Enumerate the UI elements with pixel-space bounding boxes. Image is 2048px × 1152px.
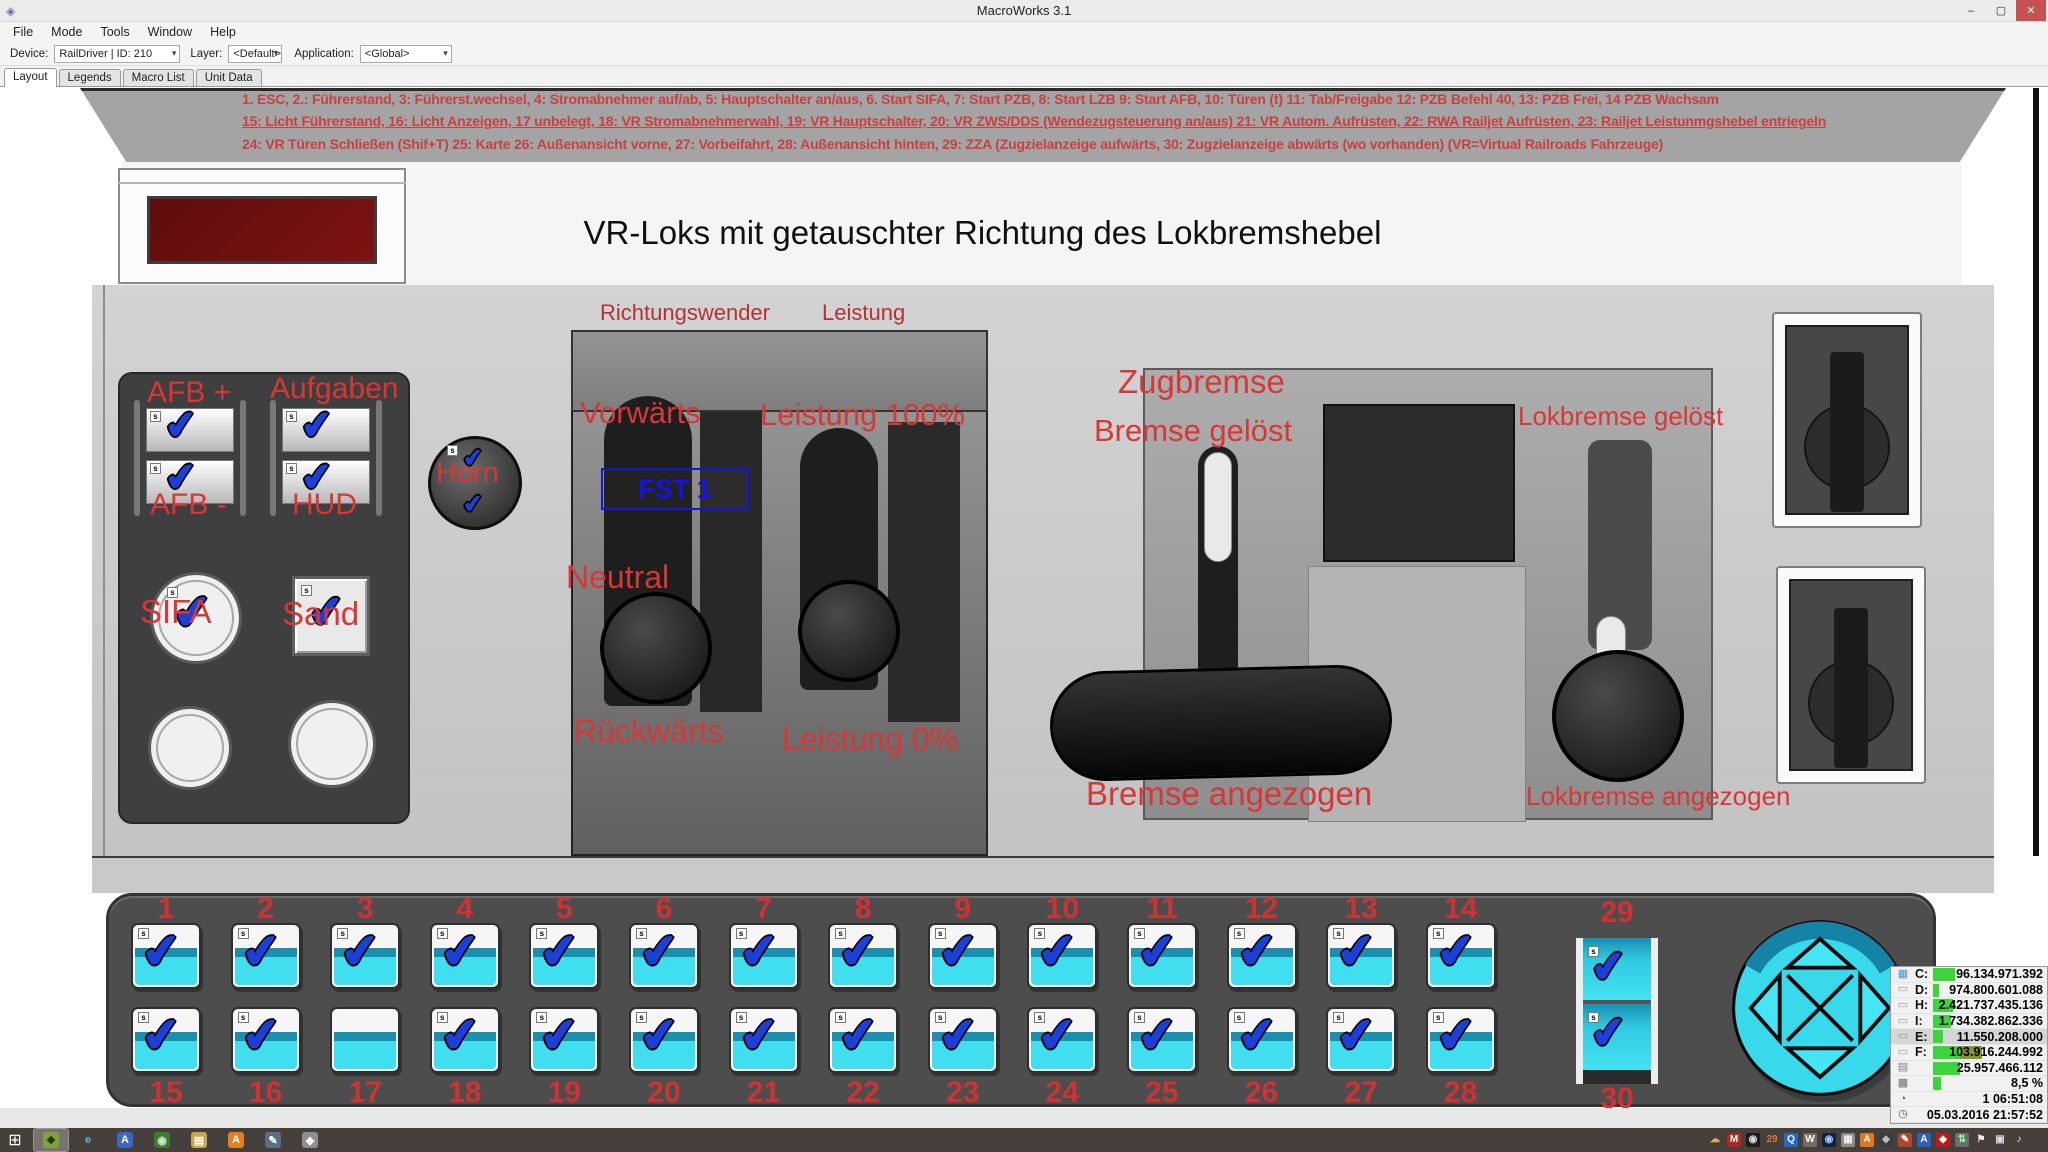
- drive-value: 8,5 %: [2011, 1076, 2043, 1090]
- device-value: RailDriver | ID: 210: [59, 48, 152, 60]
- macro-badge: s: [935, 928, 946, 939]
- window-title: MacroWorks 3.1: [0, 3, 2048, 18]
- title-bar: ◈ MacroWorks 3.1 – ▢ ✕: [0, 0, 2048, 22]
- tab[interactable]: Unit Data: [196, 69, 262, 86]
- macro-badge: s: [1234, 928, 1245, 939]
- check-icon: ✔: [163, 405, 199, 446]
- macro-badge: s: [238, 928, 249, 939]
- macro-badge: s: [447, 445, 458, 456]
- layer-select[interactable]: <Default> ▾: [228, 45, 282, 63]
- macro-badge: s: [301, 585, 312, 596]
- drive-icon: ◔: [1891, 1094, 1915, 1105]
- macro-badge: s: [286, 463, 297, 474]
- drive-icon: ▭: [1891, 1000, 1915, 1011]
- macro-badge: s: [1433, 1012, 1444, 1023]
- macro-button[interactable]: [330, 1007, 400, 1073]
- rueckwaerts-label: Rückwärts: [574, 714, 723, 749]
- macro-badge: s: [736, 1012, 747, 1023]
- application-select[interactable]: <Global> ▾: [360, 45, 452, 63]
- drive-icon: ▩: [1891, 1078, 1915, 1089]
- button-number: 6: [629, 892, 699, 926]
- deck-button-row2: s ✔ s ✔ s ✔: [131, 1007, 1496, 1073]
- button-number: 28: [1426, 1076, 1496, 1110]
- monitor-row: ▭ H: 2.421.737.435.136: [1891, 998, 2047, 1014]
- drive-icon: ▭: [1891, 984, 1915, 995]
- horn-label: Horn: [436, 458, 499, 490]
- macro-badge: s: [437, 1012, 448, 1023]
- lokbremse-angezogen-label: Lokbremse angezogen: [1526, 782, 1791, 811]
- button-number: 18: [430, 1076, 500, 1110]
- button-number: 3: [330, 892, 400, 926]
- aufgaben-label: Aufgaben: [270, 372, 398, 405]
- monitor-row: ▭ I: 1.734.382.862.336: [1891, 1014, 2047, 1030]
- fst-indicator: FST 1: [601, 468, 749, 510]
- taskbar-app-icon[interactable]: ◈: [293, 1129, 327, 1151]
- sifa-label: SIFA: [140, 594, 212, 630]
- button-number: 13: [1326, 892, 1396, 926]
- drive-icon: ▤: [1891, 1062, 1915, 1073]
- button-stripe: [334, 1032, 396, 1041]
- afb-plus-label: AFB +: [147, 376, 231, 409]
- button-number: 15: [131, 1076, 201, 1110]
- macro-button[interactable]: s ✔: [1426, 1007, 1496, 1073]
- neutral-label: Neutral: [566, 560, 669, 595]
- monitor-row: ◷ 05.03.2016 21:57:52: [1891, 1107, 2047, 1123]
- macro-button[interactable]: s ✔: [430, 923, 500, 989]
- blank-round-button[interactable]: [288, 700, 376, 788]
- app-icon: ◈: [6, 4, 15, 18]
- menu-bar: FileModeToolsWindowHelp: [0, 22, 2048, 42]
- chevron-down-icon: ▾: [443, 48, 448, 59]
- macro-badge: s: [536, 1012, 547, 1023]
- button-number: 8: [828, 892, 898, 926]
- drive-value: 1 06:51:08: [1983, 1092, 2043, 1106]
- tray-icon[interactable]: M: [1727, 1133, 1741, 1147]
- button-number: 10: [1027, 892, 1097, 926]
- macro-button[interactable]: s ✔: [529, 1007, 599, 1073]
- macro-badge: s: [167, 587, 178, 598]
- app-glyph-icon: ◈: [302, 1132, 318, 1148]
- macro-badge: s: [150, 463, 161, 474]
- macro-button[interactable]: s ✔: [928, 923, 998, 989]
- blank-round-button[interactable]: [148, 706, 232, 790]
- drive-value: 25.957.466.112: [1957, 1061, 2043, 1075]
- bremse-geloest-label: Bremse gelöst: [1094, 414, 1292, 448]
- dpad-control[interactable]: [1724, 912, 1916, 1104]
- tray-icon[interactable]: A: [1860, 1133, 1874, 1147]
- macro-button[interactable]: s ✔: [1426, 923, 1496, 989]
- macro-badge: s: [1034, 1012, 1045, 1023]
- drive-label: C:: [1915, 967, 1928, 981]
- deck-button-row1: s ✔ s ✔ s ✔ s ✔: [131, 923, 1496, 989]
- key-legend-line3: 24: VR Türen Schließen (Shif+T) 25: Kart…: [242, 136, 1663, 152]
- button-number: 20: [629, 1076, 699, 1110]
- macro-badge: s: [636, 1012, 647, 1023]
- tray-icon[interactable]: A: [1917, 1133, 1931, 1147]
- macro-badge: s: [935, 1012, 946, 1023]
- macro-badge: s: [1333, 1012, 1344, 1023]
- console-bottom-band: [92, 856, 1994, 893]
- button-number: 21: [729, 1076, 799, 1110]
- drive-value: 05.03.2016 21:57:52: [1927, 1108, 2043, 1122]
- taskbar-app-icon[interactable]: A: [219, 1129, 253, 1151]
- button-number: 9: [928, 892, 998, 926]
- leistung100-label: Leistung 100%: [760, 398, 965, 432]
- button-ring: [156, 714, 224, 782]
- macro-badge: s: [1034, 928, 1045, 939]
- app-glyph-icon: A: [117, 1132, 133, 1148]
- throttle-slot2: [888, 422, 960, 722]
- app-glyph-icon: e: [80, 1132, 96, 1148]
- monitor-row: ▤ 25.957.466.112: [1891, 1061, 2047, 1077]
- chevron-down-icon: ▾: [274, 48, 279, 59]
- rocker-rail: [270, 400, 276, 516]
- macro-badge: s: [138, 1012, 149, 1023]
- loco-brake-knob[interactable]: [1552, 650, 1684, 782]
- macro-badge: s: [1333, 928, 1344, 939]
- macro-button[interactable]: s ✔: [1127, 923, 1197, 989]
- menu-item[interactable]: Mode: [42, 23, 91, 41]
- macro-badge: s: [337, 928, 348, 939]
- monitor-row: ◔ 1 06:51:08: [1891, 1092, 2047, 1108]
- menu-item[interactable]: File: [4, 23, 42, 41]
- macro-button[interactable]: s ✔: [1127, 1007, 1197, 1073]
- lokbremse-geloest-label: Lokbremse gelöst: [1518, 402, 1723, 431]
- tray-icon[interactable]: Q: [1784, 1133, 1798, 1147]
- button-number: 14: [1426, 892, 1496, 926]
- check-icon: ✔: [462, 492, 485, 518]
- macro-button[interactable]: s ✔: [231, 1007, 301, 1073]
- macro-button[interactable]: s ✔: [629, 1007, 699, 1073]
- drive-value: 96.134.971.392: [1956, 967, 2043, 981]
- drive-icon: ▦: [1891, 969, 1915, 980]
- macro-badge: s: [138, 928, 149, 939]
- monitor-row: ▦ C: 96.134.971.392: [1891, 967, 2047, 983]
- usage-bar: [1933, 984, 1939, 997]
- rotary-switch-upper[interactable]: [1772, 312, 1922, 528]
- macro-button[interactable]: s ✔: [529, 923, 599, 989]
- rocker-rail: [240, 400, 246, 516]
- monitor-row: ▩ 8,5 %: [1891, 1076, 2047, 1092]
- taskbar-apps: ❖ e A ◉ ▤ A: [34, 1129, 327, 1151]
- tray-icon[interactable]: ▣: [1993, 1133, 2007, 1147]
- macro-button[interactable]: s ✔: [231, 923, 301, 989]
- console-seam: [103, 285, 105, 856]
- macro-badge: s: [536, 928, 547, 939]
- macro-button[interactable]: s ✔: [1326, 1007, 1396, 1073]
- monitor-row: ▭ E: 11.550.208.000: [1891, 1029, 2047, 1045]
- button-number: 17: [330, 1076, 400, 1110]
- usage-bar: [1933, 1030, 1943, 1043]
- desktop-strip: [0, 1108, 2048, 1128]
- drive-value: 11.550.208.000: [1957, 1030, 2043, 1044]
- tray-icon[interactable]: ✎: [1898, 1133, 1912, 1147]
- macro-button[interactable]: s ✔: [330, 923, 400, 989]
- canvas-right-edge: [2033, 88, 2039, 856]
- macro-button[interactable]: s ✔: [131, 1007, 201, 1073]
- macro-button[interactable]: s ✔: [1227, 1007, 1297, 1073]
- tab[interactable]: Legends: [59, 69, 121, 86]
- tray-icon[interactable]: ♪: [2012, 1133, 2026, 1147]
- taskbar-app-icon[interactable]: e: [71, 1129, 105, 1151]
- button-number: 23: [928, 1076, 998, 1110]
- usage-bar: [1933, 1077, 1941, 1090]
- macro-badge: s: [835, 928, 846, 939]
- tray-icon[interactable]: ◆: [1879, 1133, 1893, 1147]
- macro-button[interactable]: s ✔: [1227, 923, 1297, 989]
- macro-button[interactable]: s ✔: [828, 1007, 898, 1073]
- chevron-down-icon: ▾: [172, 48, 177, 59]
- macro-button[interactable]: s ✔: [430, 1007, 500, 1073]
- app-glyph-icon: ✎: [265, 1132, 281, 1148]
- minimize-button[interactable]: –: [1956, 0, 1986, 21]
- drive-value: 103.916.244.992: [1949, 1045, 2043, 1059]
- menu-item[interactable]: Help: [201, 23, 245, 41]
- macro-badge: s: [1588, 946, 1599, 957]
- macro-badge: s: [1433, 928, 1444, 939]
- button-number: 2: [231, 892, 301, 926]
- drive-label: E:: [1915, 1030, 1928, 1044]
- rotary-switch-lower[interactable]: [1776, 566, 1926, 784]
- tray-icon[interactable]: ⚑: [1974, 1133, 1988, 1147]
- app-glyph-icon: ❖: [43, 1132, 59, 1148]
- button-number: 12: [1227, 892, 1297, 926]
- key-legend-line1: 1. ESC, 2.: Führerstand, 3: Führerst.wec…: [242, 91, 1719, 107]
- taskbar-app-icon[interactable]: ❖: [34, 1129, 68, 1151]
- button-number: 1: [131, 892, 201, 926]
- device-toolbar: Device: RailDriver | ID: 210 ▾ Layer: <D…: [0, 42, 2048, 66]
- tab[interactable]: Macro List: [123, 69, 194, 86]
- key-legend-line2: 15: Licht Führerstand, 16: Licht Anzeige…: [242, 113, 1826, 129]
- drive-icon: ▭: [1891, 1016, 1915, 1027]
- hud-label: HUD: [292, 488, 357, 521]
- reverser-lever[interactable]: [600, 592, 712, 704]
- monitor-row: ▭ F: 103.916.244.992: [1891, 1045, 2047, 1061]
- macro-button[interactable]: s ✔: [1326, 923, 1396, 989]
- macro-badge: s: [286, 411, 297, 422]
- check-icon: ✔: [299, 405, 335, 446]
- drive-value: 1.734.382.862.336: [1939, 1014, 2043, 1028]
- macro-badge: s: [736, 928, 747, 939]
- zugbremse-label: Zugbremse: [1118, 364, 1285, 400]
- drive-value: 974.800.601.088: [1949, 983, 2043, 997]
- system-tray: ☁ M ◉ 29 Q W ◉ ▦ A ◆ ✎ A: [1708, 1133, 2026, 1147]
- application-label: Application:: [294, 48, 353, 60]
- button-number: 5: [529, 892, 599, 926]
- train-brake-handle[interactable]: [1049, 664, 1394, 783]
- tray-icon[interactable]: ⇅: [1955, 1133, 1969, 1147]
- tray-icon[interactable]: 29: [1765, 1133, 1779, 1147]
- tray-icon[interactable]: ☁: [1708, 1133, 1722, 1147]
- led-display-screen: [147, 196, 377, 264]
- tray-icon[interactable]: ▦: [1841, 1133, 1855, 1147]
- page-title: VR-Loks mit getauschter Richtung des Lok…: [560, 214, 1405, 252]
- macro-button[interactable]: s ✔: [1027, 923, 1097, 989]
- afb-minus-label: AFB -: [150, 488, 227, 521]
- close-button[interactable]: ✕: [2016, 0, 2046, 21]
- device-select[interactable]: RailDriver | ID: 210 ▾: [54, 45, 180, 63]
- button-number: 16: [231, 1076, 301, 1110]
- rocker-rail: [134, 400, 140, 516]
- switch-30[interactable]: s ✔: [1583, 1004, 1651, 1070]
- taskbar-app-icon[interactable]: A: [108, 1129, 142, 1151]
- drive-label: I:: [1915, 1014, 1923, 1028]
- macroworks-window: ◈ MacroWorks 3.1 – ▢ ✕ FileModeToolsWind…: [0, 0, 2048, 1152]
- taskbar-app-icon[interactable]: ✎: [256, 1129, 290, 1151]
- deck-number-row1: 1234567891011121314: [131, 892, 1496, 926]
- led-display-lip: [118, 182, 406, 184]
- system-monitor-gadget: ▦ C: 96.134.971.392 ▭ D: 974.800.601.088…: [1890, 966, 2048, 1124]
- macro-button[interactable]: s ✔: [729, 1007, 799, 1073]
- taskbar-app-icon[interactable]: ◉: [145, 1129, 179, 1151]
- leistung-header: Leistung: [822, 300, 905, 326]
- afb-plus-switch[interactable]: s ✔: [146, 408, 234, 452]
- button-number: 7: [729, 892, 799, 926]
- macro-badge: s: [150, 411, 161, 422]
- train-brake-stem: [1204, 452, 1232, 562]
- macro-badge: s: [437, 928, 448, 939]
- tab-strip: LayoutLegendsMacro ListUnit Data: [0, 66, 2048, 87]
- tray-icon[interactable]: ◆: [1936, 1133, 1950, 1147]
- switch29-number: 29: [1576, 896, 1658, 930]
- deck-number-row2: 1516171819202122232425262728: [131, 1076, 1496, 1110]
- drive-icon: ◷: [1891, 1109, 1915, 1120]
- macro-badge: s: [1134, 1012, 1145, 1023]
- macro-badge: s: [1134, 928, 1145, 939]
- usage-bar: [1933, 968, 1955, 981]
- button-number: 22: [828, 1076, 898, 1110]
- button-number: 19: [529, 1076, 599, 1110]
- reverser-slot2: [700, 412, 762, 712]
- app-glyph-icon: ▤: [191, 1132, 207, 1148]
- tray-icon[interactable]: ◉: [1822, 1133, 1836, 1147]
- rotary-lever: [1834, 608, 1868, 768]
- throttle-lever[interactable]: [798, 580, 900, 682]
- taskbar-app-icon[interactable]: ▤: [182, 1129, 216, 1151]
- rocker-rail: [376, 400, 382, 516]
- bremse-angezogen-label: Bremse angezogen: [1086, 776, 1372, 812]
- taskbar: ⊞ ❖ e A ◉ ▤: [0, 1128, 2048, 1152]
- macro-badge: s: [238, 1012, 249, 1023]
- macro-button[interactable]: s ✔: [828, 923, 898, 989]
- application-value: <Global>: [365, 48, 410, 60]
- brake-dark-block: [1323, 404, 1515, 562]
- tray-icon[interactable]: ◉: [1746, 1133, 1760, 1147]
- macro-button[interactable]: s ✔: [131, 923, 201, 989]
- drive-label: D:: [1915, 983, 1928, 997]
- device-label: Device:: [10, 48, 48, 60]
- button-ring: [296, 708, 368, 780]
- button-number: 27: [1326, 1076, 1396, 1110]
- vorwaerts-label: Vorwärts: [580, 396, 701, 430]
- button-number: 25: [1127, 1076, 1197, 1110]
- drive-value: 2.421.737.435.136: [1939, 998, 2043, 1012]
- macro-badge: s: [636, 928, 647, 939]
- button-number: 24: [1027, 1076, 1097, 1110]
- switch-29[interactable]: s ✔: [1583, 938, 1651, 1004]
- dpad-icon: [1724, 912, 1916, 1104]
- aufgaben-switch[interactable]: s ✔: [282, 408, 370, 452]
- macro-button[interactable]: s ✔: [629, 923, 699, 989]
- richtungswender-header: Richtungswender: [600, 300, 770, 326]
- button-number: 26: [1227, 1076, 1297, 1110]
- leistung0-label: Leistung 0%: [782, 722, 958, 757]
- button-number: 11: [1127, 892, 1197, 926]
- menu-item[interactable]: Window: [139, 23, 201, 41]
- monitor-row: ▭ D: 974.800.601.088: [1891, 983, 2047, 999]
- app-glyph-icon: A: [228, 1132, 244, 1148]
- drive-label: H:: [1915, 998, 1928, 1012]
- macro-badge: s: [1234, 1012, 1245, 1023]
- menu-item[interactable]: Tools: [91, 23, 138, 41]
- macro-badge: s: [1588, 1012, 1599, 1023]
- start-button[interactable]: ⊞: [0, 1129, 30, 1151]
- tab[interactable]: Layout: [4, 68, 57, 87]
- fst-label: FST 1: [638, 474, 712, 505]
- macro-button[interactable]: s ✔: [1027, 1007, 1097, 1073]
- sand-label: Sand: [282, 596, 359, 632]
- layer-label: Layer:: [190, 48, 222, 60]
- drive-icon: ▭: [1891, 1047, 1915, 1058]
- drive-label: F:: [1915, 1045, 1927, 1059]
- macro-button[interactable]: s ✔: [729, 923, 799, 989]
- maximize-button[interactable]: ▢: [1986, 0, 2016, 21]
- switch-29-30: s ✔ s ✔: [1576, 938, 1658, 1084]
- tray-icon[interactable]: W: [1803, 1133, 1817, 1147]
- button-number: 4: [430, 892, 500, 926]
- rotary-lever: [1830, 352, 1864, 512]
- app-glyph-icon: ◉: [154, 1132, 170, 1148]
- drive-icon: ▭: [1891, 1031, 1915, 1042]
- macro-badge: s: [835, 1012, 846, 1023]
- macro-button[interactable]: s ✔: [928, 1007, 998, 1073]
